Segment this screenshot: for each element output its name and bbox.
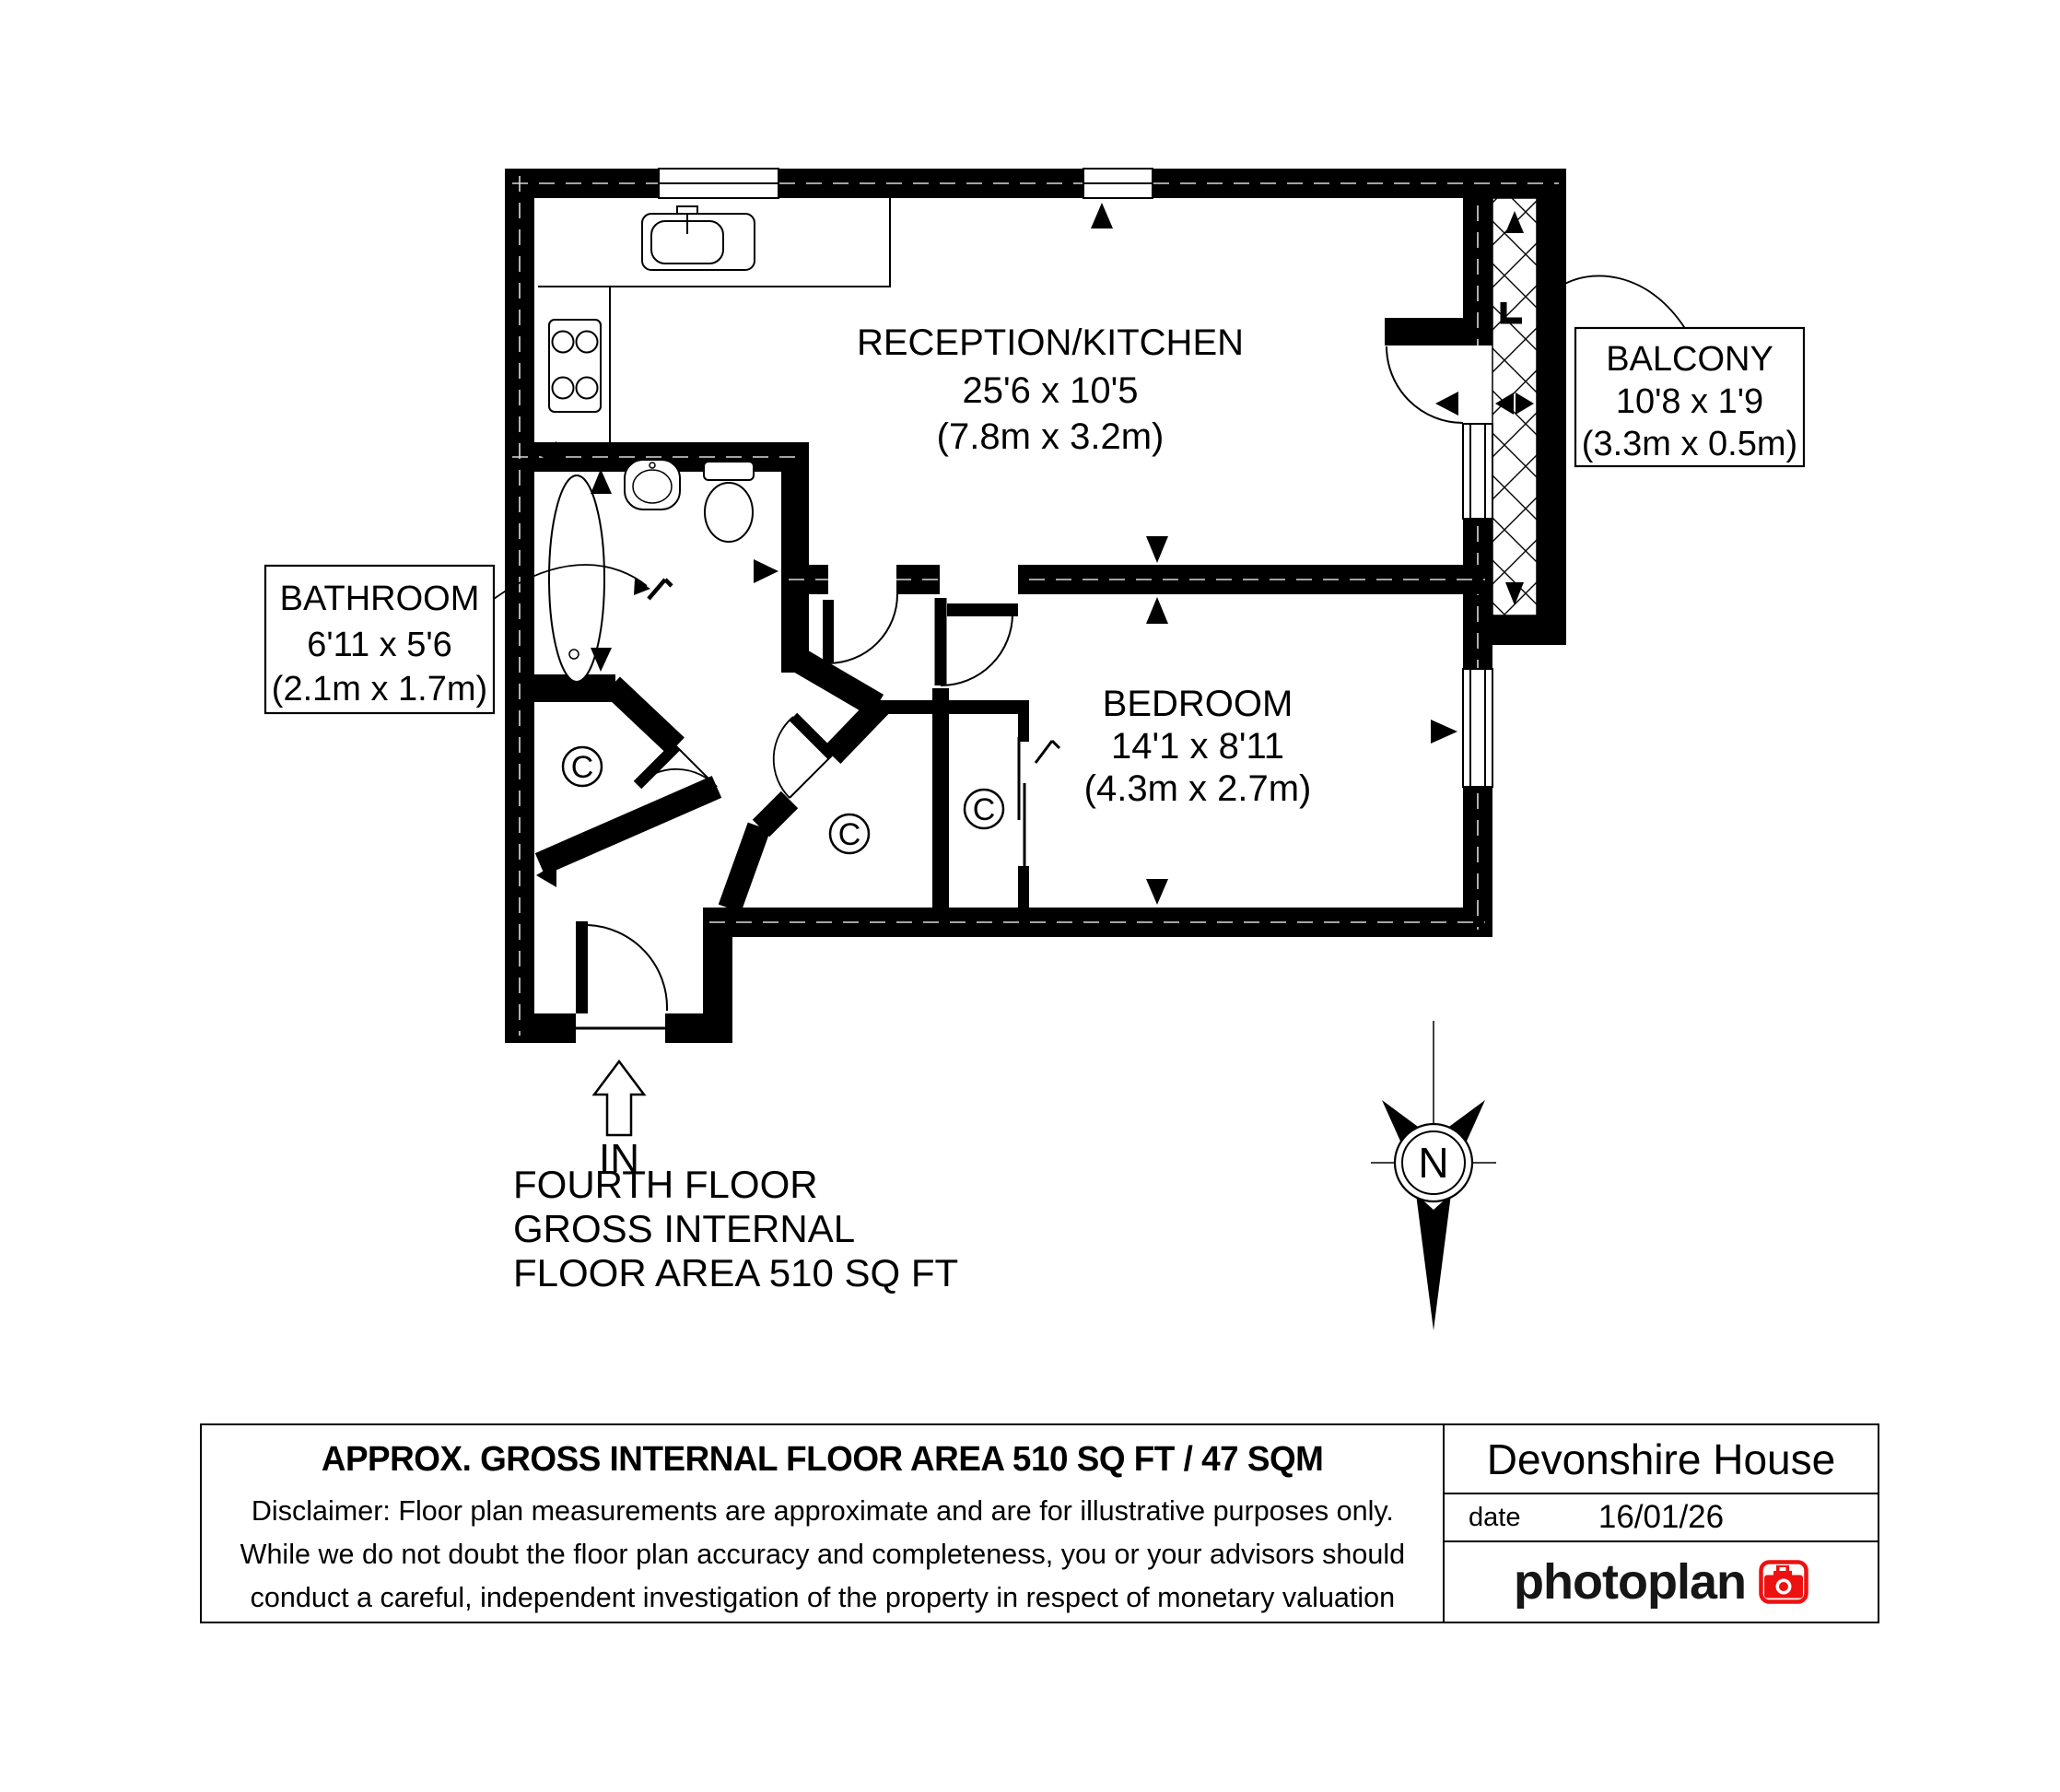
svg-text:BALCONY: BALCONY: [1606, 340, 1773, 379]
arrow-left-icon: [1435, 392, 1458, 416]
disclaimer-line: While we do not doubt the floor plan acc…: [240, 1532, 1405, 1575]
closet-middle-door: [774, 717, 832, 798]
reception-label: RECEPTION/KITCHEN 25'6 x 10'5 (7.8m x 3.…: [857, 322, 1244, 457]
brand-name: photoplan: [1514, 1553, 1746, 1610]
balcony-callout: BALCONY 10'8 x 1'9 (3.3m x 0.5m): [1559, 275, 1804, 466]
svg-text:(7.8m x 3.2m): (7.8m x 3.2m): [937, 416, 1165, 457]
svg-text:6'11 x 5'6: 6'11 x 5'6: [307, 626, 451, 664]
hob: [549, 320, 601, 412]
svg-text:GROSS INTERNAL: GROSS INTERNAL: [513, 1207, 855, 1250]
svg-text:14'1 x 8'11: 14'1 x 8'11: [1111, 726, 1284, 767]
arrow-up-icon: [1091, 203, 1113, 228]
hall-door: [828, 594, 897, 663]
entrance-door: [576, 921, 667, 1028]
in-arrow-icon: [594, 1061, 644, 1135]
floor-note: FOURTH FLOOR GROSS INTERNAL FLOOR AREA 5…: [513, 1163, 958, 1294]
balcony-deck: [1492, 198, 1537, 615]
svg-text:(2.1m x 1.7m): (2.1m x 1.7m): [272, 670, 487, 709]
toilet: [704, 462, 754, 542]
svg-text:FOURTH FLOOR: FOURTH FLOOR: [513, 1163, 818, 1206]
arrow-up-icon: [1146, 597, 1168, 624]
wardrobe: [1019, 737, 1059, 873]
arrow-right-icon: [1431, 720, 1457, 744]
window-bedroom: [1463, 669, 1492, 787]
area-statement: APPROX. GROSS INTERNAL FLOOR AREA 510 SQ…: [322, 1440, 1324, 1480]
middle-wall: [781, 565, 1492, 594]
arrow-down-icon: [1146, 536, 1168, 563]
svg-text:10'8 x 1'9: 10'8 x 1'9: [1616, 382, 1763, 421]
svg-text:BATHROOM: BATHROOM: [280, 580, 480, 618]
bedroom-label: BEDROOM 14'1 x 8'11 (4.3m x 2.7m): [1084, 684, 1312, 809]
arrow-right-icon: [754, 559, 778, 583]
svg-text:FLOOR AREA 510 SQ FT: FLOOR AREA 510 SQ FT: [513, 1251, 958, 1294]
room-labels: RECEPTION/KITCHEN 25'6 x 10'5 (7.8m x 3.…: [265, 275, 1804, 809]
closet-right: C: [965, 790, 1003, 828]
date-row: date 16/01/26: [1445, 1494, 1878, 1542]
brand-row: photoplan: [1445, 1542, 1878, 1622]
bathroom-door-leaf: [649, 580, 672, 599]
disclaimer-line: conduct a careful, independent investiga…: [240, 1575, 1405, 1619]
north-label: N: [1418, 1139, 1448, 1187]
svg-text:(4.3m x 2.7m): (4.3m x 2.7m): [1084, 768, 1312, 809]
closet-middle: C: [830, 814, 869, 853]
window-balcony-door: [1463, 424, 1492, 519]
walls: [505, 169, 1566, 1043]
closet-label: C: [838, 817, 861, 852]
footer-area-section: APPROX. GROSS INTERNAL FLOOR AREA 510 SQ…: [202, 1425, 1445, 1622]
arrow-up-icon: [591, 469, 612, 494]
footer-table: APPROX. GROSS INTERNAL FLOOR AREA 510 SQ…: [200, 1423, 1879, 1623]
date-value: 16/01/26: [1445, 1499, 1878, 1536]
svg-text:25'6 x 10'5: 25'6 x 10'5: [963, 370, 1139, 411]
footer-title-block: Devonshire House date 16/01/26 photoplan: [1445, 1425, 1878, 1622]
closet-label: C: [571, 750, 594, 785]
kitchen-sink: [642, 206, 755, 270]
closet-left: C: [563, 747, 602, 786]
property-name: Devonshire House: [1445, 1425, 1878, 1494]
svg-text:RECEPTION/KITCHEN: RECEPTION/KITCHEN: [857, 322, 1244, 363]
window-reception-top-right: [1083, 169, 1153, 198]
arrow-down-icon: [1146, 879, 1168, 905]
svg-text:BEDROOM: BEDROOM: [1103, 684, 1293, 724]
basin: [625, 460, 680, 509]
window-reception-top-left: [659, 169, 778, 198]
wall-centerlines: [512, 176, 1559, 1036]
closet-label: C: [973, 792, 996, 827]
svg-text:(3.3m x 0.5m): (3.3m x 0.5m): [1582, 425, 1797, 463]
disclaimer: Disclaimer: Floor plan measurements are …: [240, 1489, 1405, 1619]
floorplan-page: C C C RECEPTION/KITCHEN 25'6 x 10'5 (7.8…: [0, 0, 2060, 1792]
camera-icon: [1759, 1560, 1808, 1604]
disclaimer-line: Disclaimer: Floor plan measurements are …: [240, 1489, 1405, 1532]
north-compass: N: [1371, 1021, 1496, 1330]
